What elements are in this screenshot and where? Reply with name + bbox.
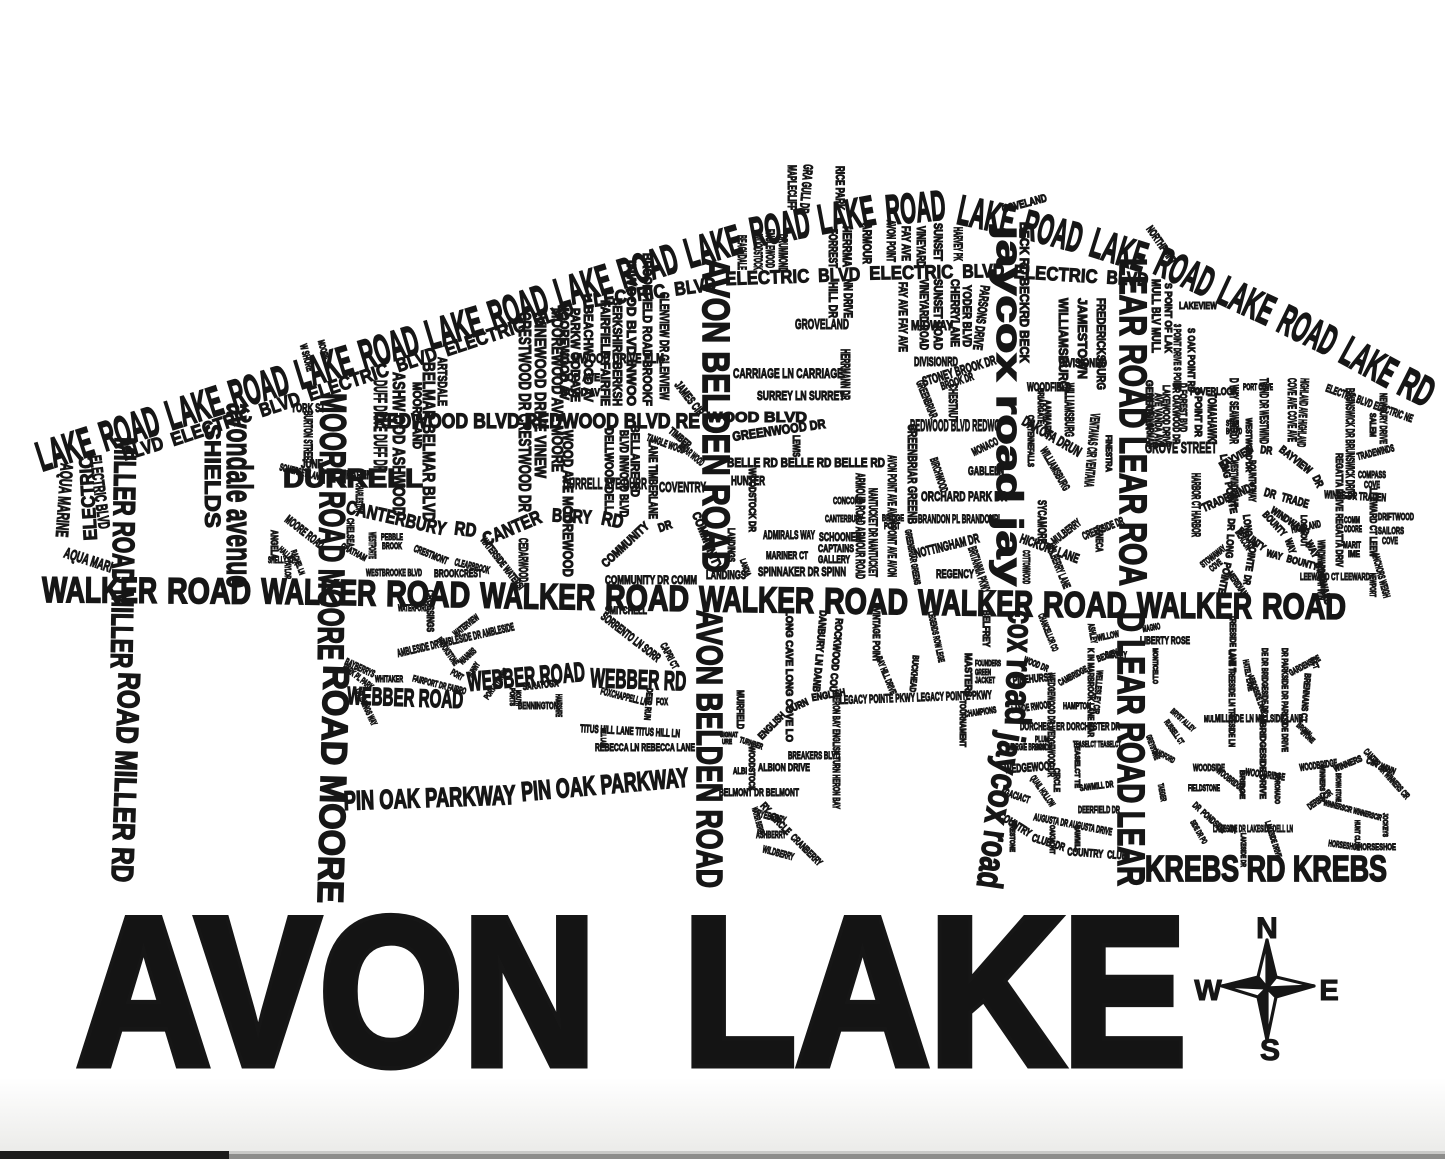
- svg-text:SPINNAKER DR SPINN: SPINNAKER DR SPINN: [758, 564, 846, 579]
- svg-text:FREDERICKSBURG: FREDERICKSBURG: [1094, 298, 1107, 390]
- svg-text:MILLER ROAD MILLER: MILLER ROAD MILLER: [104, 437, 142, 669]
- svg-text:N: N: [1256, 912, 1278, 945]
- svg-text:FINESTRA: FINESTRA: [1104, 435, 1114, 473]
- svg-text:WATERFORD: WATERFORD: [398, 603, 428, 613]
- svg-text:DIVISIONRD: DIVISIONRD: [1059, 356, 1107, 370]
- svg-text:VINEWOOD DRIVE VINEW: VINEWOOD DRIVE VINEW: [531, 316, 548, 479]
- svg-text:COVENTRY: COVENTRY: [659, 479, 706, 496]
- svg-text:DRIFTWOOD: DRIFTWOOD: [1378, 512, 1414, 523]
- svg-text:FOUNDERS: FOUNDERS: [975, 659, 1001, 668]
- svg-text:HERRMANN DR: HERRMANN DR: [838, 349, 853, 400]
- svg-text:road: road: [997, 659, 1040, 726]
- svg-text:WOOD AVE MOOREWOOD: WOOD AVE MOOREWOOD: [559, 430, 575, 577]
- svg-text:DELLWOOD DELL: DELLWOOD DELL: [602, 428, 615, 512]
- svg-text:URE: URE: [722, 739, 732, 746]
- svg-text:W: W: [1194, 975, 1222, 1007]
- svg-text:VINEYARD: VINEYARD: [914, 226, 927, 267]
- svg-text:HAMPSHIRE: HAMPSHIRE: [554, 694, 564, 717]
- svg-text:FIRESTONE: FIRESTONE: [1008, 820, 1017, 852]
- svg-text:MARINER CT: MARINER CT: [766, 550, 808, 562]
- svg-text:SIGNAT: SIGNAT: [720, 732, 738, 739]
- svg-text:MULL BLV MULL: MULL BLV MULL: [1149, 279, 1162, 353]
- svg-text:ARMOUR ROAD ARMOUR ROAD: ARMOUR ROAD ARMOUR ROAD: [853, 473, 868, 579]
- svg-text:CARRIAGE LN CARRIAGE: CARRIAGE LN CARRIAGE: [733, 365, 843, 381]
- svg-text:ENGLEWOOD: ENGLEWOOD: [763, 229, 776, 268]
- svg-text:MASTERS: MASTERS: [962, 653, 973, 697]
- svg-text:LANE TIMBERLANE: LANE TIMBERLANE: [646, 440, 659, 519]
- svg-text:BROOK: BROOK: [382, 541, 402, 551]
- svg-text:avondale avenue: avondale avenue: [219, 403, 260, 588]
- svg-text:WINDWARD WAY WIN: WINDWARD WAY WIN: [1315, 540, 1326, 600]
- svg-text:OOD AVE: OOD AVE: [560, 372, 600, 384]
- svg-text:TOURNAMENT: TOURNAMENT: [958, 700, 968, 748]
- svg-text:GROVELAND: GROVELAND: [795, 316, 849, 333]
- svg-text:SURREY LN SURREY: SURREY LN SURREY: [757, 388, 845, 403]
- svg-text:S: S: [1260, 1034, 1280, 1067]
- svg-text:CHEYENNEFALLS: CHEYENNEFALLS: [1026, 415, 1036, 467]
- svg-text:LAKESIDE DR LAKESIDE DELL LN: LAKESIDE DR LAKESIDE DELL LN: [1213, 824, 1293, 835]
- svg-text:SUNSET: SUNSET: [931, 223, 944, 261]
- svg-text:DR: DR: [1225, 518, 1237, 531]
- svg-text:MONTICELLO: MONTICELLO: [1151, 648, 1160, 684]
- svg-text:DRUMMOND: DRUMMOND: [776, 234, 789, 272]
- svg-text:HILL DR: HILL DR: [826, 282, 839, 318]
- svg-text:MBRIDGESIDE DRIVE: MBRIDGESIDE DRIVE: [1258, 715, 1268, 799]
- svg-text:GLENVIEW DR GLENVIEW: GLENVIEW DR GLENVIEW: [657, 292, 672, 400]
- svg-text:3 POINT DRIVE S POINT: 3 POINT DRIVE S POINT: [1171, 324, 1182, 390]
- svg-text:RD: RD: [453, 518, 477, 542]
- svg-text:PIN OAK PARKWAY: PIN OAK PARKWAY: [343, 780, 516, 816]
- svg-text:BROWN STONE: BROWN STONE: [1334, 773, 1343, 802]
- svg-text:ASHW OOD ASHWOOD: ASHW OOD ASHWOOD: [389, 372, 409, 516]
- svg-text:LANDINGS: LANDINGS: [725, 528, 736, 562]
- svg-text:CIRCLE: CIRCLE: [1052, 768, 1062, 792]
- svg-text:JUNE: JUNE: [301, 457, 323, 471]
- svg-text:AANMARIE: AANMARIE: [1043, 400, 1053, 437]
- svg-text:TEASELCT TE: TEASELCT TE: [1073, 742, 1082, 788]
- svg-text:BELFREY: BELFREY: [980, 610, 991, 647]
- svg-text:CLUB: CLUB: [1107, 849, 1128, 862]
- svg-text:BURY: BURY: [551, 505, 592, 528]
- svg-text:MUL: MUL: [1204, 714, 1215, 724]
- svg-text:AVON: AVON: [77, 874, 596, 1109]
- svg-text:WEBBER ROAD: WEBBER ROAD: [347, 682, 464, 714]
- svg-text:FAY AVE: FAY AVE: [899, 226, 912, 261]
- svg-text:LAKEVIEW: LAKEVIEW: [1179, 301, 1217, 312]
- svg-text:ALBION DRIVE: ALBION DRIVE: [758, 762, 810, 774]
- svg-text:INWOOD BLVD INWOO: INWOOD BLVD INWOO: [624, 260, 639, 406]
- svg-text:MIDWAY: MIDWAY: [911, 317, 953, 333]
- svg-text:BRIDGE: BRIDGE: [1238, 770, 1247, 799]
- svg-text:BROOK: BROOK: [1035, 743, 1052, 752]
- svg-text:GROVE STREET: GROVE STREET: [1145, 440, 1217, 457]
- svg-text:FOX: FOX: [656, 697, 668, 708]
- svg-text:NN DRIVE: NN DRIVE: [841, 279, 854, 318]
- svg-text:KAREN: KAREN: [346, 468, 372, 482]
- svg-text:DR PARKSIDE DR PARKSIDE DRIVE: DR PARKSIDE DR PARKSIDE DRIVE: [1280, 648, 1290, 752]
- svg-text:VINEYARD ROAD: VINEYARD ROAD: [917, 279, 930, 350]
- svg-text:HERRMA: HERRMA: [840, 226, 853, 267]
- svg-text:SENECA: SENECA: [1093, 525, 1104, 552]
- svg-text:RD: RD: [600, 508, 626, 533]
- svg-text:LANDINGS: LANDINGS: [706, 568, 746, 582]
- svg-text:BOARD: BOARD: [1226, 427, 1242, 436]
- svg-text:LONG: LONG: [1223, 534, 1235, 559]
- svg-text:SAWMILL: SAWMILL: [1073, 825, 1082, 852]
- svg-text:CORONADO: CORONADO: [1273, 773, 1282, 804]
- svg-text:FAY AVE FAY AVE: FAY AVE FAY AVE: [896, 282, 909, 352]
- svg-text:OAKMONT: OAKMONT: [1048, 825, 1057, 854]
- svg-text:ARMOUR: ARMOUR: [860, 223, 873, 264]
- svg-text:CONCORD: CONCORD: [833, 496, 863, 507]
- svg-text:ADMIRALS WAY: ADMIRALS WAY: [763, 528, 815, 542]
- svg-text:AVON BELDEN ROAD: AVON BELDEN ROAD: [689, 610, 730, 888]
- svg-text:GABLELN: GABLELN: [968, 464, 1004, 478]
- svg-text:NANTUCKET DR NANTUCKET: NANTUCKET DR NANTUCKET: [866, 488, 879, 577]
- svg-text:SALEM: SALEM: [1368, 413, 1378, 437]
- svg-text:WOOD AV: WOOD AV: [560, 387, 600, 399]
- svg-text:ELMWOOD DRIVE ELM: ELMWOOD DRIVE ELM: [560, 350, 664, 366]
- svg-text:DORCHEST ER DORCHESTER DR: DORCHEST ER DORCHESTER DR: [1020, 721, 1120, 733]
- svg-text:REGENCY: REGENCY: [936, 567, 974, 581]
- svg-text:BELMONT DR BELMONT: BELMONT DR BELMONT: [719, 787, 799, 799]
- svg-text:BECK RD BECKRD BECK: BECK RD BECKRD BECK: [1017, 222, 1032, 363]
- svg-text:LIBERTY ROSE: LIBERTY ROSE: [1140, 635, 1190, 647]
- svg-text:BREAKERS BLVD: BREAKERS BLVD: [788, 750, 840, 762]
- svg-text:ODORE: ODORE: [1344, 524, 1362, 534]
- svg-text:YORK ST: YORK ST: [291, 401, 325, 415]
- svg-text:ARTSDALE: ARTSDALE: [435, 357, 450, 406]
- svg-text:LANE TREESIDE LN TREESIDE LN: LANE TREESIDE LN TREESIDE LN: [1227, 650, 1237, 747]
- svg-text:COMMUNITY DR COMM: COMMUNITY DR COMM: [605, 573, 697, 587]
- svg-text:REDWOOD BLVD REDWOOD BLVD RE: REDWOOD BLVD REDWOOD BLVD RE: [374, 410, 700, 433]
- svg-text:ALBI: ALBI: [733, 766, 747, 776]
- svg-text:COTTONWOOD: COTTONWOOD: [1020, 550, 1031, 584]
- svg-text:LEEWARD CT LEEWARD: LEEWARD CT LEEWARD: [1300, 572, 1370, 583]
- svg-text:cox: cox: [1000, 610, 1042, 653]
- svg-text:BENNINGTON: BENNINGTON: [518, 701, 558, 712]
- svg-text:VINTAGE POINT: VINTAGE POINT: [870, 608, 881, 663]
- svg-text:BROOKCREST: BROOKCREST: [434, 568, 482, 580]
- svg-text:MILLSIDE LN MILLSIDE LANE: MILLSIDE LN MILLSIDE LANE: [1215, 713, 1303, 725]
- svg-text:HARVEY PK: HARVEY PK: [951, 227, 964, 261]
- svg-text:JACKET: JACKET: [975, 676, 995, 685]
- svg-text:WILLIAMSBURG: WILLIAMSBURG: [1056, 298, 1071, 390]
- svg-text:REDWOOD BLVD REDWO: REDWOOD BLVD REDWO: [910, 416, 1000, 435]
- svg-text:LEEWARD CT LEEW: LEEWARD CT LEEW: [1367, 488, 1378, 557]
- svg-text:LONG CAVE LONG COVE LO: LONG CAVE LONG COVE LO: [783, 610, 794, 742]
- svg-text:COVE: COVE: [1382, 536, 1398, 547]
- svg-text:DURRELL AVE DURR: DURRELL AVE DURR: [563, 476, 647, 493]
- svg-text:TOMAHAWK: TOMAHAWK: [1205, 393, 1218, 442]
- svg-text:FORREST: FORREST: [826, 229, 839, 268]
- svg-text:SUNSET ROAD: SUNSET ROAD: [931, 279, 944, 350]
- svg-text:MOUTH: MOUTH: [514, 690, 523, 706]
- svg-text:WOODSTOCK: WOODSTOCK: [751, 234, 764, 270]
- svg-text:CANTERBURY: CANTERBURY: [825, 514, 863, 525]
- svg-text:MUIRFIELD: MUIRFIELD: [734, 690, 745, 729]
- svg-text:MAPLECLIFF: MAPLECLIFF: [785, 165, 798, 210]
- svg-text:AN AVE NORMAN: AN AVE NORMAN: [1144, 393, 1155, 447]
- svg-text:SCHOONER: SCHOONER: [819, 530, 861, 544]
- svg-text:TWIND DR WESTWIND: TWIND DR WESTWIND: [1257, 378, 1270, 444]
- svg-text:YODER BLVD: YODER BLVD: [960, 285, 973, 347]
- svg-text:DR: DR: [1260, 444, 1273, 457]
- svg-text:REBECCA LN REBECCA LANE: REBECCA LN REBECCA LANE: [595, 742, 695, 754]
- svg-text:AVON POINT: AVON POINT: [884, 220, 897, 262]
- svg-text:SYCAMORE: SYCAMORE: [1035, 500, 1048, 544]
- svg-text:WILLIAMSBURG: WILLIAMSBURG: [1062, 383, 1077, 437]
- svg-text:REGATTA DRIVE REGATTA DRIV: REGATTA DRIVE REGATTA DRIV: [1333, 453, 1344, 567]
- svg-text:DEERFIELD DR: DEERFIELD DR: [1078, 805, 1120, 816]
- svg-text:ORCHARD PARK DR: ORCHARD PARK DR: [921, 488, 1007, 504]
- svg-text:E: E: [1319, 975, 1338, 1007]
- svg-text:LAKE: LAKE: [683, 874, 1186, 1109]
- svg-text:IME: IME: [1348, 549, 1360, 559]
- svg-text:CHERRYLANE: CHERRYLANE: [948, 279, 961, 347]
- svg-text:WOODSTOCK: WOODSTOCK: [747, 746, 757, 792]
- svg-text:BROOKFIELD ROAD BROOKF: BROOKFIELD ROAD BROOKF: [640, 253, 655, 406]
- svg-text:JOCKEYS: JOCKEYS: [1381, 813, 1390, 837]
- svg-text:BEACHDALE: BEACHDALE: [735, 235, 748, 270]
- svg-text:CHARLESTON: CHARLESTON: [353, 483, 364, 512]
- svg-text:WOODSTOCK DR: WOODSTOCK DR: [746, 468, 757, 532]
- svg-text:RICE PARK: RICE PARK: [833, 166, 846, 210]
- svg-text:ROAD: ROAD: [824, 580, 909, 622]
- svg-text:PORT: PORT: [884, 521, 900, 531]
- svg-text:ROAD: ROAD: [1262, 585, 1346, 627]
- svg-text:D FOREST BVD: D FOREST BVD: [1177, 383, 1188, 432]
- svg-text:DE DR BRIDGESIDE DR: DE DR BRIDGESIDE DR: [1260, 648, 1270, 714]
- svg-text:LEWIS: LEWIS: [790, 435, 801, 457]
- svg-text:FIELDSTONE: FIELDSTONE: [1188, 783, 1220, 793]
- svg-text:GREENBRIAR GREENB: GREENBRIAR GREENB: [905, 424, 920, 524]
- svg-text:BEXLEY: BEXLEY: [1105, 650, 1127, 660]
- svg-text:HARBOR CT HARBOR: HARBOR CT HARBOR: [1189, 473, 1202, 537]
- svg-text:BRANDON PL BRANDONPL: BRANDON PL BRANDONPL: [918, 512, 1002, 526]
- svg-text:WALKER: WALKER: [480, 575, 596, 618]
- svg-text:WESTBROOKE BLVD: WESTBROOKE BLVD: [366, 568, 422, 579]
